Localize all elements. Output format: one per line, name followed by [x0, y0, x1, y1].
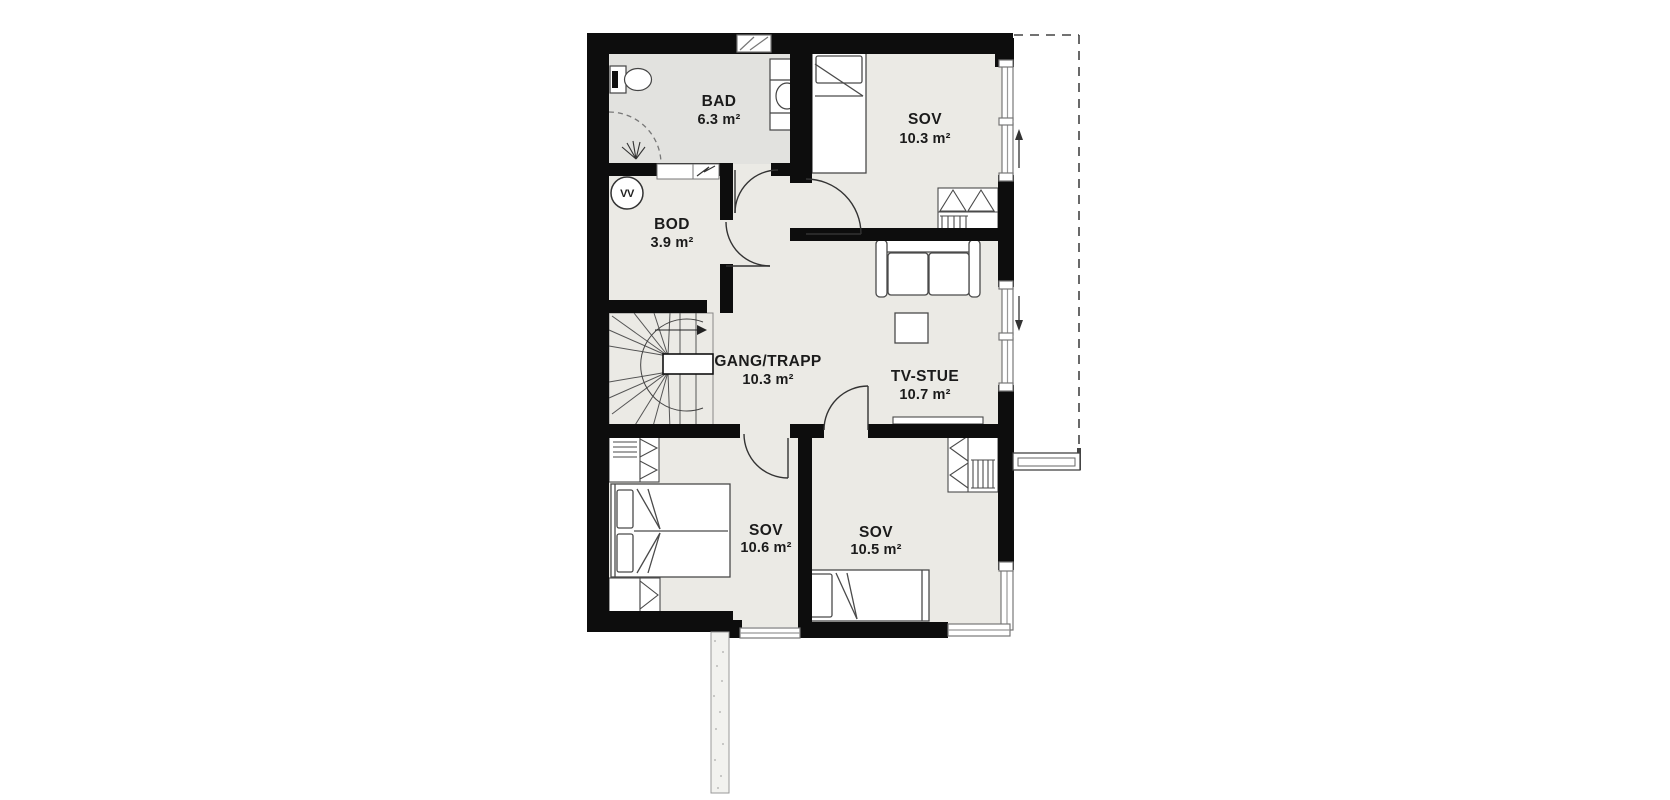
- vent-top-wall: [737, 35, 771, 52]
- room-area-tvstue: 10.7 m²: [899, 387, 950, 403]
- room-area-bad: 6.3 m²: [697, 112, 740, 128]
- wardrobe-sov-bottom: [948, 433, 998, 492]
- room-label-bod: BOD: [654, 216, 690, 233]
- room-label-tvstue: TV-STUE: [891, 368, 959, 385]
- side-table: [895, 313, 928, 343]
- window-arrow-down: [1015, 296, 1023, 331]
- toilet: [610, 66, 652, 93]
- bed-sov-bottom: [806, 570, 929, 621]
- room-label-sov-bottom: SOV: [859, 524, 893, 541]
- room-label-bad: BAD: [702, 93, 737, 110]
- wall-left: [587, 33, 609, 632]
- room-label-sov-left: SOV: [749, 522, 783, 539]
- wall-stairs-north: [609, 300, 707, 313]
- bed-sov-left-double: [611, 484, 730, 577]
- room-label-gang: GANG/TRAPP: [714, 353, 821, 370]
- wardrobe-gang-lower: [609, 578, 660, 612]
- wall-sov-top-west: [790, 33, 812, 183]
- room-label-sov-top: SOV: [908, 111, 942, 128]
- wall-cabinet: [657, 164, 693, 179]
- room-area-bod: 3.9 m²: [650, 235, 693, 251]
- sofa: [876, 240, 980, 297]
- floor-plan-drawing: VV: [0, 0, 1670, 800]
- wardrobe-gang-upper: [609, 437, 659, 482]
- wall-bod-east-lower: [720, 264, 733, 313]
- roof-outline-dashed: [1014, 35, 1079, 470]
- bed-sov-top: [812, 52, 866, 173]
- wall-bottom-left: [587, 611, 733, 632]
- room-area-sov-bottom: 10.5 m²: [850, 542, 901, 558]
- water-heater-label: VV: [620, 188, 635, 200]
- wall-tvstue-south: [868, 424, 1008, 438]
- room-area-gang: 10.3 m²: [742, 372, 793, 388]
- wall-right-lower: [998, 385, 1014, 570]
- wall-gang-south: [587, 424, 740, 438]
- electrical-panel: [693, 164, 719, 179]
- room-area-sov-top: 10.3 m²: [899, 131, 950, 147]
- wall-sov-divider: [798, 424, 812, 622]
- window-arrow-up: [1015, 129, 1023, 168]
- exterior-ledge: [1013, 453, 1080, 470]
- room-area-sov-left: 10.6 m²: [740, 540, 791, 556]
- tv-bench: [893, 417, 983, 424]
- floor-plan-canvas: VV: [0, 0, 1670, 800]
- water-heater-symbol: VV: [611, 177, 643, 209]
- exterior-retaining-wall: [711, 632, 729, 793]
- wall-bod-east-upper: [720, 163, 733, 220]
- wall-bottom-mid: [798, 622, 948, 638]
